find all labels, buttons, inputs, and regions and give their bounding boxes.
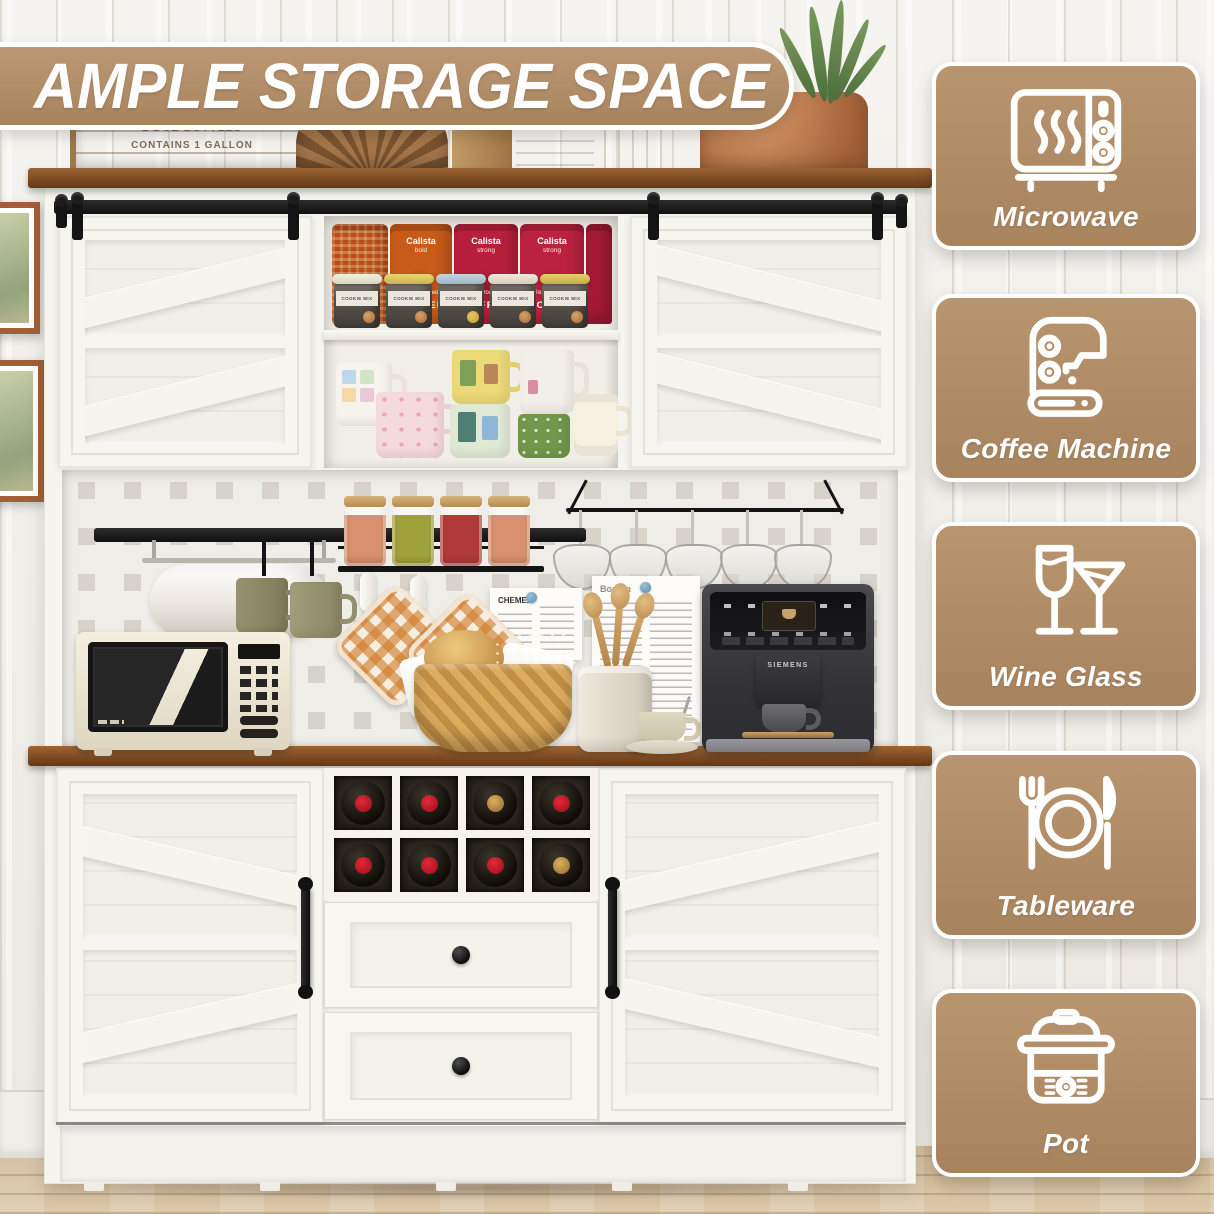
crate-stamp-line2: CONTAINS 1 GALLON: [76, 140, 308, 151]
microwave-foot: [254, 748, 272, 756]
page-title: AMPLE STORAGE SPACE: [34, 49, 769, 123]
microwave-button: [240, 716, 278, 725]
canister-lid: [488, 274, 538, 284]
picture-frame: [0, 202, 40, 334]
wine-bottle: [539, 843, 583, 887]
door-brace: [657, 240, 881, 336]
frame-artwork: [0, 371, 33, 491]
plinth: [60, 1126, 906, 1182]
bottle-cap: [421, 795, 438, 812]
mug: [518, 414, 570, 458]
microwave-display: [238, 644, 280, 659]
canister-lid: [540, 274, 590, 284]
push-pin: [640, 582, 651, 593]
wine-cubby: [334, 776, 392, 830]
bottle-cap: [355, 857, 372, 874]
mug: [450, 404, 510, 458]
microwave-control-panel: [236, 642, 282, 740]
drawer-top: [324, 902, 598, 1008]
cabinet-foot: [788, 1182, 808, 1191]
mug: [574, 394, 618, 456]
feature-label: Microwave: [993, 201, 1139, 233]
door-panel: [85, 348, 285, 444]
bottom-track: [56, 1122, 906, 1125]
cookie-graphic: [467, 311, 479, 323]
towel-holder-bar: [142, 558, 336, 563]
bottle-cap: [421, 857, 438, 874]
wine-bottle: [539, 781, 583, 825]
panel-icons-row: [724, 632, 852, 636]
cookie-graphic: [363, 311, 375, 323]
door-panel: [85, 240, 285, 336]
cookie-canister: COOKIE MIX: [386, 282, 432, 328]
door-brace: [657, 348, 881, 444]
coffee-bag-brand: Calista: [520, 236, 584, 246]
canister-lid: [384, 274, 434, 284]
utensil-crock: [578, 666, 652, 752]
cookie-canister: COOKIE MIX: [542, 282, 588, 328]
coffee-bag: [586, 224, 612, 324]
door-panel: [625, 950, 879, 1096]
microwave-keypad: [240, 666, 278, 712]
door-hanger-strap: [72, 196, 83, 240]
coffee-bag-brand: Calista: [390, 236, 452, 246]
door-panel: [657, 348, 881, 444]
rail-end-bracket: [56, 198, 67, 228]
door-brace: [85, 242, 285, 334]
canister-label: COOKIE MIX: [440, 291, 482, 306]
mug: [452, 350, 510, 404]
canister-lid: [436, 274, 486, 284]
door-hanger-strap: [288, 196, 299, 240]
cookie-canister: COOKIE MIX: [334, 282, 380, 328]
canister-label: COOKIE MIX: [492, 291, 534, 306]
drawer-bottom: [324, 1012, 598, 1120]
wine-glass-stem: [800, 510, 803, 546]
mug-pattern: [528, 380, 538, 394]
bottle-cap: [355, 795, 372, 812]
rail-end-bracket: [896, 198, 907, 228]
push-pin: [526, 592, 537, 603]
door-hanger-strap: [648, 196, 659, 240]
coffee-machine-screen: [762, 601, 816, 631]
door-brace: [625, 814, 879, 918]
wine-cubby: [400, 776, 458, 830]
cookie-graphic: [519, 311, 531, 323]
microwave-door: [88, 642, 228, 732]
frame-artwork: [0, 213, 29, 323]
wine-cubby: [466, 838, 524, 892]
cookie-graphic: [571, 311, 583, 323]
door-brace: [83, 977, 297, 1069]
feature-card-wine-glass: Wine Glass: [932, 522, 1200, 710]
mug-pattern: [482, 416, 498, 440]
mug-pattern: [360, 370, 374, 384]
feature-label: Coffee Machine: [961, 433, 1172, 465]
wine-rack: [324, 768, 598, 900]
wine-cubby: [334, 838, 392, 892]
wine-glass-stem: [635, 510, 638, 546]
door-hanger-strap: [872, 196, 883, 240]
door-brace: [85, 350, 285, 442]
cup-handle: [806, 708, 821, 730]
microwave-icon: [1002, 80, 1130, 194]
door-panel: [657, 240, 881, 336]
feature-label: Tableware: [997, 890, 1136, 922]
door-handle: [608, 886, 617, 990]
plant: [786, 0, 886, 114]
feature-label: Wine Glass: [989, 661, 1143, 693]
spice-jar: [392, 506, 434, 566]
canister-label: COOKIE MIX: [388, 291, 430, 306]
microwave-logo: [98, 720, 124, 724]
door-brace: [83, 820, 297, 912]
bottle-cap: [487, 857, 504, 874]
cookie-canister: COOKIE MIX: [490, 282, 536, 328]
feature-card-tableware: Tableware: [932, 751, 1200, 939]
door-panel: [83, 950, 297, 1096]
j-hook: [310, 542, 314, 576]
mug-handle: [340, 594, 357, 624]
microwave-foot: [94, 748, 112, 756]
left-baseboard: [0, 1090, 44, 1158]
spice-jar: [344, 506, 386, 566]
barn-door-lower-left: [56, 768, 324, 1124]
mug-pattern: [342, 370, 356, 384]
coffee-machine-spout: SIEMENS: [756, 654, 820, 706]
feature-label: Pot: [1043, 1128, 1089, 1160]
door-panel: [83, 794, 297, 938]
drawer-knob: [452, 946, 470, 964]
cabinet-foot: [436, 1182, 456, 1191]
mug-pattern: [360, 388, 374, 402]
screen-cup-graphic: [782, 609, 796, 619]
wine-bottle: [341, 843, 385, 887]
cabinet-foot: [260, 1182, 280, 1191]
microwave-button: [240, 729, 278, 738]
mug: [376, 392, 444, 458]
mug-pattern: [484, 364, 498, 384]
product-infographic: 2 DOZ BOTTLES CONTAINS 1 GALLON Calista …: [0, 0, 1214, 1214]
cabinet-foot: [612, 1182, 632, 1191]
saucer: [626, 740, 698, 754]
panel-buttons-row: [722, 637, 854, 645]
pot-icon: [1002, 1007, 1130, 1121]
mug-pattern: [342, 388, 356, 402]
title-banner: AMPLE STORAGE SPACE: [0, 42, 794, 130]
microwave: [76, 632, 290, 750]
bottle-cap: [487, 795, 504, 812]
coffee-bag-variant: strong: [454, 247, 518, 254]
espresso-cup: [762, 704, 806, 732]
hanging-mug: [290, 582, 342, 638]
mug: [520, 350, 574, 414]
wine-bottle: [473, 843, 517, 887]
door-handle: [301, 886, 310, 990]
canister-lid: [332, 274, 382, 284]
mug-pattern: [460, 360, 476, 386]
coffee-machine-icon: [1002, 312, 1130, 426]
coffee-machine-brand: SIEMENS: [756, 662, 820, 669]
cookie-canister: COOKIE MIX: [438, 282, 484, 328]
wine-bottle: [407, 781, 451, 825]
wine-cubby: [466, 776, 524, 830]
cabinet-foot: [84, 1182, 104, 1191]
feature-card-pot: Pot: [932, 989, 1200, 1177]
coffee-bag-variant: bold: [390, 247, 452, 254]
door-panel: [625, 794, 879, 938]
canister-label: COOKIE MIX: [544, 291, 586, 306]
cookie-graphic: [415, 311, 427, 323]
wine-bottle: [341, 781, 385, 825]
feature-card-coffee-machine: Coffee Machine: [932, 294, 1200, 482]
picture-frame: [0, 360, 44, 502]
drip-tray: [742, 732, 834, 738]
wine-glass-stem: [746, 510, 749, 546]
jar-lid: [344, 496, 386, 507]
hanging-mug: [236, 578, 288, 634]
jar-lid: [440, 496, 482, 507]
bottle-cap: [553, 795, 570, 812]
wine-cubby: [532, 776, 590, 830]
drawer-knob: [452, 1057, 470, 1075]
shelf-board: [324, 330, 618, 340]
wine-glass-icon: [1002, 540, 1130, 654]
sliding-door-rail: [54, 200, 906, 214]
mug-pattern: [458, 412, 476, 442]
wine-glass-stem: [691, 510, 694, 546]
bottle-cap: [553, 857, 570, 874]
canister-label: COOKIE MIX: [336, 291, 378, 306]
teacup: [638, 712, 686, 742]
coffee-machine-base: [706, 739, 870, 752]
wine-bottle: [407, 843, 451, 887]
spice-jar: [488, 506, 530, 566]
jar-lid: [488, 496, 530, 507]
jar-lid: [392, 496, 434, 507]
barn-door-lower-right: [598, 768, 906, 1124]
door-brace: [625, 971, 879, 1075]
barn-door-upper-left: [58, 216, 312, 468]
cabinet-top-board: [28, 168, 932, 188]
mug-handle: [570, 362, 589, 398]
coffee-bag-variant: strong: [520, 247, 584, 254]
tableware-icon: [1002, 769, 1130, 883]
wine-cubby: [400, 838, 458, 892]
bread-basket: [414, 664, 572, 752]
coffee-machine: SIEMENS: [702, 584, 874, 752]
wine-cubby: [532, 838, 590, 892]
barn-door-upper-right: [630, 216, 908, 468]
j-hook: [262, 542, 266, 576]
feature-card-microwave: Microwave: [932, 62, 1200, 250]
coffee-machine-panel: [710, 592, 866, 650]
wine-bottle: [473, 781, 517, 825]
spice-jar: [440, 506, 482, 566]
coffee-bag-brand: Calista: [454, 236, 518, 246]
